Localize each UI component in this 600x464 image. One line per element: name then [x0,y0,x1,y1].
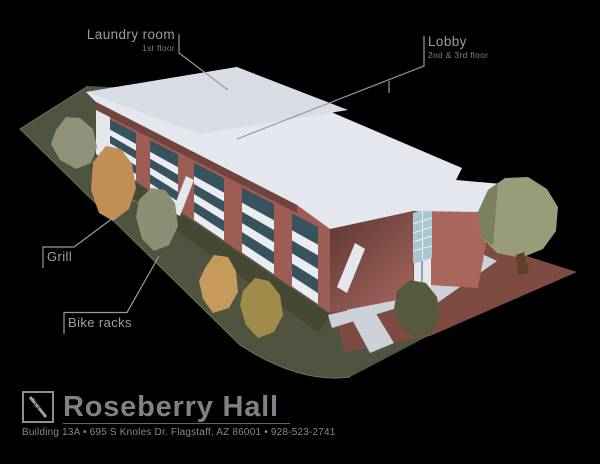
building-name-title: Roseberry Hall [63,391,279,424]
title-underline [63,423,290,424]
callout-grill: Grill [47,249,72,264]
callout-lobby: Lobby 2nd & 3rd floor [428,35,488,60]
callout-title: Grill [47,249,72,264]
callout-title: Bike racks [68,315,132,330]
callout-bike-racks: Bike racks [68,315,132,330]
callout-subtitle: 2nd & 3rd floor [428,50,488,60]
callout-laundry-room: Laundry room 1st floor [60,28,175,53]
callout-title: Lobby [428,35,488,49]
building-address: Building 13A • 695 S Knoles Dr. Flagstaf… [22,427,336,438]
university-logo-mark [24,393,52,421]
building-diagram: Laundry room 1st floor Lobby 2nd & 3rd f… [0,0,600,464]
callout-title: Laundry room [60,28,175,42]
callout-subtitle: 1st floor [60,43,175,53]
university-logo [22,391,54,423]
